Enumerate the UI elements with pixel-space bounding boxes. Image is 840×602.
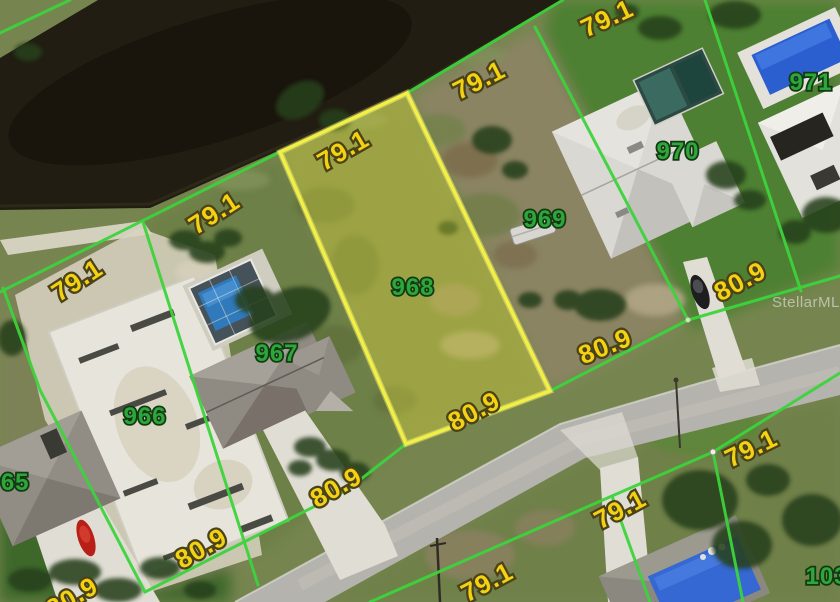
parcel-number-label: 966 xyxy=(123,403,166,430)
corner-marker xyxy=(710,449,716,455)
parcel-number-label: 965 xyxy=(0,469,30,496)
watermark: StellarMLS xyxy=(772,294,840,311)
parcel-number-label: 970 xyxy=(656,138,699,165)
aerial-map: 79.179.179.179.179.180.980.980.980.980.9… xyxy=(0,0,840,602)
aerial-photo: 79.179.179.179.179.180.980.980.980.980.9… xyxy=(0,0,840,602)
parcel-number-label: 103 xyxy=(805,563,840,590)
parcel-number-label: 967 xyxy=(255,340,298,367)
corner-marker xyxy=(686,318,691,323)
parcel-number-label: 968 xyxy=(391,274,434,301)
parcel-number-label: 969 xyxy=(523,206,566,233)
pool-furniture xyxy=(700,554,706,560)
parcel-number-label: 971 xyxy=(789,69,832,96)
street-light xyxy=(674,378,679,383)
